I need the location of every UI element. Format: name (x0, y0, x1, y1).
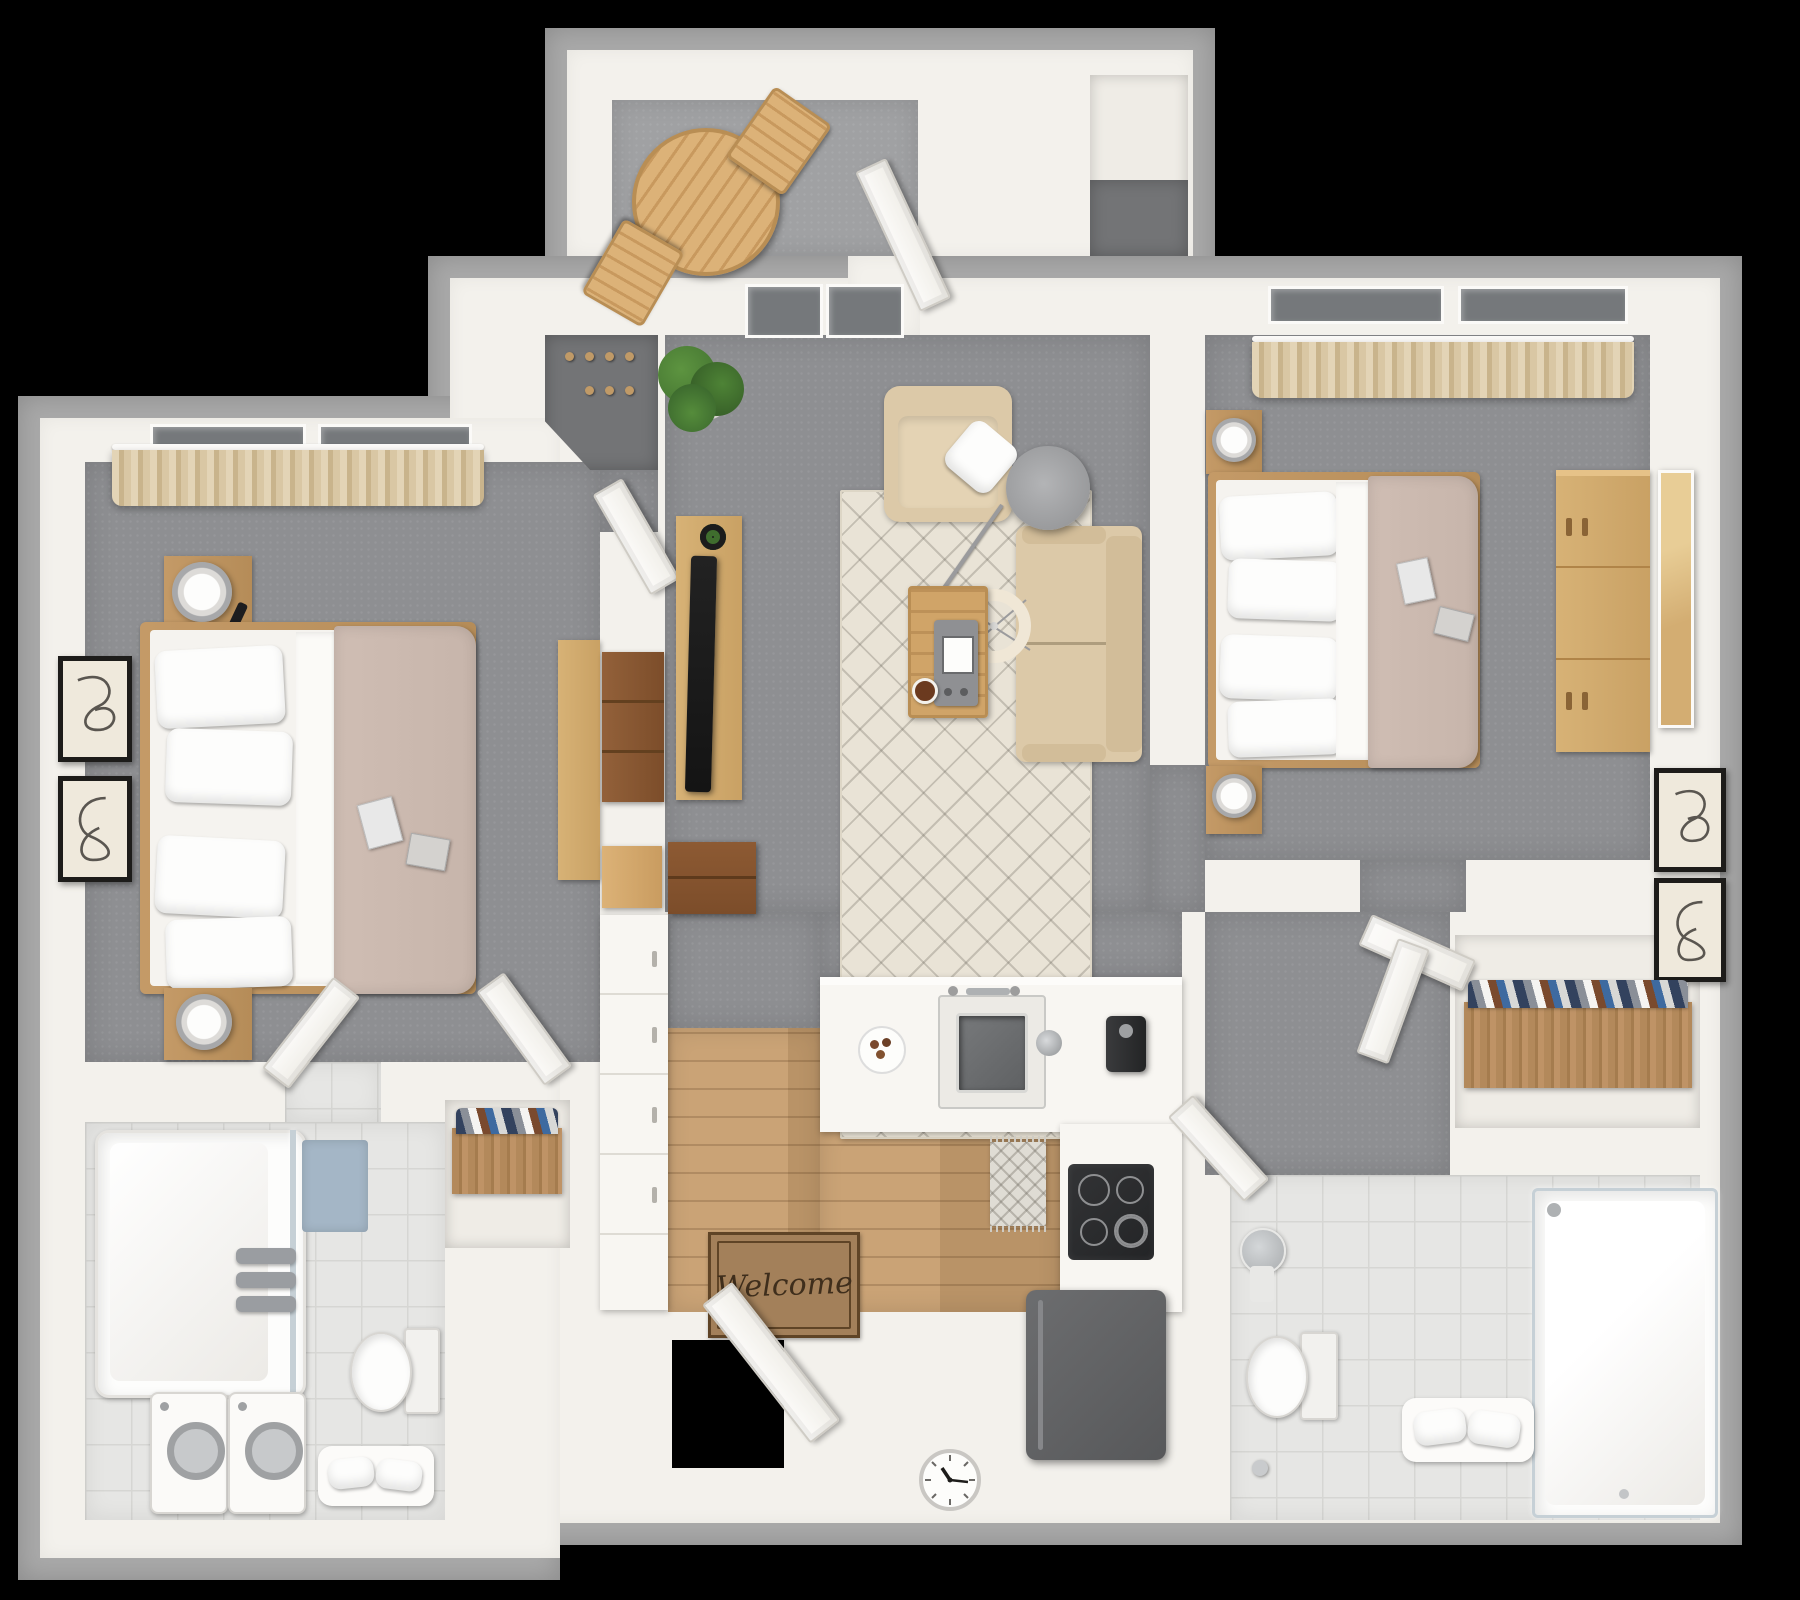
tray-knob (944, 688, 952, 696)
kitchen-counter-left (600, 915, 668, 1310)
washer-dial (160, 1402, 169, 1411)
dresser-drawer-line (1556, 658, 1650, 660)
living-window-left (745, 284, 823, 338)
dryer-dial (238, 1402, 247, 1411)
toilet-paper-stand-2 (1252, 1460, 1268, 1476)
bedroom-1-wall-art-1 (58, 656, 132, 762)
bedroom-1-desk (558, 640, 600, 880)
coffee-cup (912, 678, 938, 704)
fridge-handle (1038, 1300, 1043, 1450)
shoes-row-1 (456, 1108, 558, 1134)
dresser-handle (1582, 692, 1588, 710)
dresser-drawer-line (1556, 566, 1650, 568)
plant-foliage-3 (668, 384, 716, 432)
bed-1-pillow-4 (165, 916, 293, 990)
white-towel-folded (1466, 1409, 1522, 1450)
table-lamp-1a (172, 562, 232, 622)
line-art-icon (63, 781, 127, 877)
glass-shower (1532, 1188, 1718, 1518)
toilet-2-bowl (1246, 1336, 1308, 1418)
coffee-maker (1106, 1016, 1146, 1072)
cabinet-shelf-line (602, 700, 664, 703)
shoes-row-2 (1468, 980, 1688, 1008)
tray-knob (960, 688, 968, 696)
burner-double (1114, 1214, 1148, 1248)
shower-head (1547, 1203, 1561, 1217)
coat-peg-row-2 (585, 386, 645, 398)
kitchen-side-cabinet (602, 846, 662, 908)
arc-lamp-shade (1006, 446, 1090, 530)
storage-closet-dark-pad (1090, 180, 1188, 256)
bed-2-pillow-4 (1227, 698, 1343, 758)
bedroom-2-curtains (1252, 342, 1634, 398)
bed-2-pillow-2 (1227, 558, 1343, 622)
wall-clock (918, 1448, 982, 1512)
sink-pedestal (1250, 1266, 1274, 1302)
bed-1-duvet (334, 626, 476, 994)
refrigerator (1026, 1290, 1166, 1460)
dresser-handle (1582, 518, 1588, 536)
living-window-right (826, 284, 904, 338)
shoe-rack-1 (452, 1128, 562, 1194)
bedroom-2-wall-art-2 (1654, 878, 1726, 982)
burner (1080, 1218, 1108, 1246)
washer (150, 1392, 228, 1514)
toilet-1-bowl (350, 1332, 412, 1412)
dryer (228, 1392, 306, 1514)
cookie (870, 1040, 879, 1049)
bedroom-2-door-threshold (1360, 860, 1466, 912)
cookie (882, 1038, 891, 1047)
drawer-handle (652, 1027, 657, 1043)
dresser-handle (1566, 692, 1572, 710)
bedroom-2-wall-art-1 (1654, 768, 1726, 872)
coffee-maker-lid (1119, 1024, 1133, 1038)
sink-knob-left (948, 986, 958, 996)
line-art-icon (63, 661, 127, 757)
bedroom-2-dresser (1556, 470, 1650, 752)
drawer-line (600, 1073, 668, 1075)
dryer-door (245, 1422, 303, 1480)
sofa-arm-bottom (1022, 744, 1106, 762)
bed-1-pillow-3 (154, 835, 286, 920)
drawer-handle (652, 1187, 657, 1203)
serving-tray (934, 620, 978, 706)
bed-1-pillow-1 (154, 645, 286, 730)
table-lamp-2a (1212, 418, 1256, 462)
sofa-arm-top (1022, 526, 1106, 544)
gray-towel-2 (236, 1272, 296, 1288)
drawer-line (600, 1233, 668, 1235)
shower-tray (1545, 1201, 1705, 1505)
bedroom-1-curtains (112, 450, 484, 506)
magazine-2 (406, 833, 451, 871)
faucet-bar (966, 988, 1010, 995)
white-towel-folded (1412, 1407, 1468, 1447)
console-plant (700, 524, 726, 550)
cabinet-shelf-line (668, 876, 756, 879)
floor-plan-render: Welcome (0, 0, 1800, 1600)
drawer-handle (652, 951, 657, 967)
washer-door (167, 1422, 225, 1480)
living-floor-extension-left (668, 912, 820, 1028)
burner (1116, 1176, 1144, 1204)
tub-shower (95, 1130, 306, 1398)
bed-2-pillow-3 (1219, 634, 1339, 702)
drawer-handle (652, 1107, 657, 1123)
white-towel-roll (327, 1456, 376, 1491)
rug-fringe (990, 1136, 1046, 1142)
media-cabinet (602, 652, 664, 802)
table-lamp-2b (1212, 774, 1256, 818)
cookie (876, 1050, 885, 1059)
shower-drain (1619, 1489, 1629, 1499)
sofa-back (1106, 536, 1142, 752)
sofa-cushion-seam (1024, 642, 1106, 645)
leaning-mirror (1658, 470, 1694, 728)
cookie-plate (858, 1026, 906, 1074)
kitchen-dark-upper-cabinet (668, 842, 756, 914)
sink-basin (956, 1013, 1028, 1093)
drawer-line (600, 1153, 668, 1155)
bedroom-2-window-left (1268, 286, 1444, 324)
sink-knob-right (1010, 986, 1020, 996)
bedroom-2-window-right (1458, 286, 1628, 324)
rug-fringe (990, 1226, 1046, 1232)
blue-bath-mat (302, 1140, 368, 1232)
line-art-icon (1659, 773, 1721, 867)
gray-towel-3 (236, 1296, 296, 1312)
burner (1078, 1174, 1110, 1206)
bed-1-pillow-2 (165, 728, 294, 806)
bathroom-2-bench (1402, 1398, 1534, 1462)
shoe-rack-2 (1464, 1002, 1692, 1088)
kitchen-runner-rug (990, 1142, 1046, 1226)
white-towel-roll (374, 1457, 423, 1492)
faucet-sprayer (1036, 1030, 1062, 1056)
line-art-icon (1659, 883, 1721, 977)
cooktop (1068, 1164, 1154, 1260)
bedroom-1-wall-art-2 (58, 776, 132, 882)
tray-dish (942, 636, 974, 674)
dresser-handle (1566, 518, 1572, 536)
bed-2-pillow-1 (1218, 491, 1339, 561)
coat-peg-row-1 (565, 352, 645, 364)
gray-towel-1 (236, 1248, 296, 1264)
table-lamp-1b (176, 994, 232, 1050)
laundry-bench (318, 1446, 434, 1506)
cabinet-shelf-line (602, 750, 664, 753)
drawer-line (600, 993, 668, 995)
hall-opening-floor (1150, 765, 1205, 912)
